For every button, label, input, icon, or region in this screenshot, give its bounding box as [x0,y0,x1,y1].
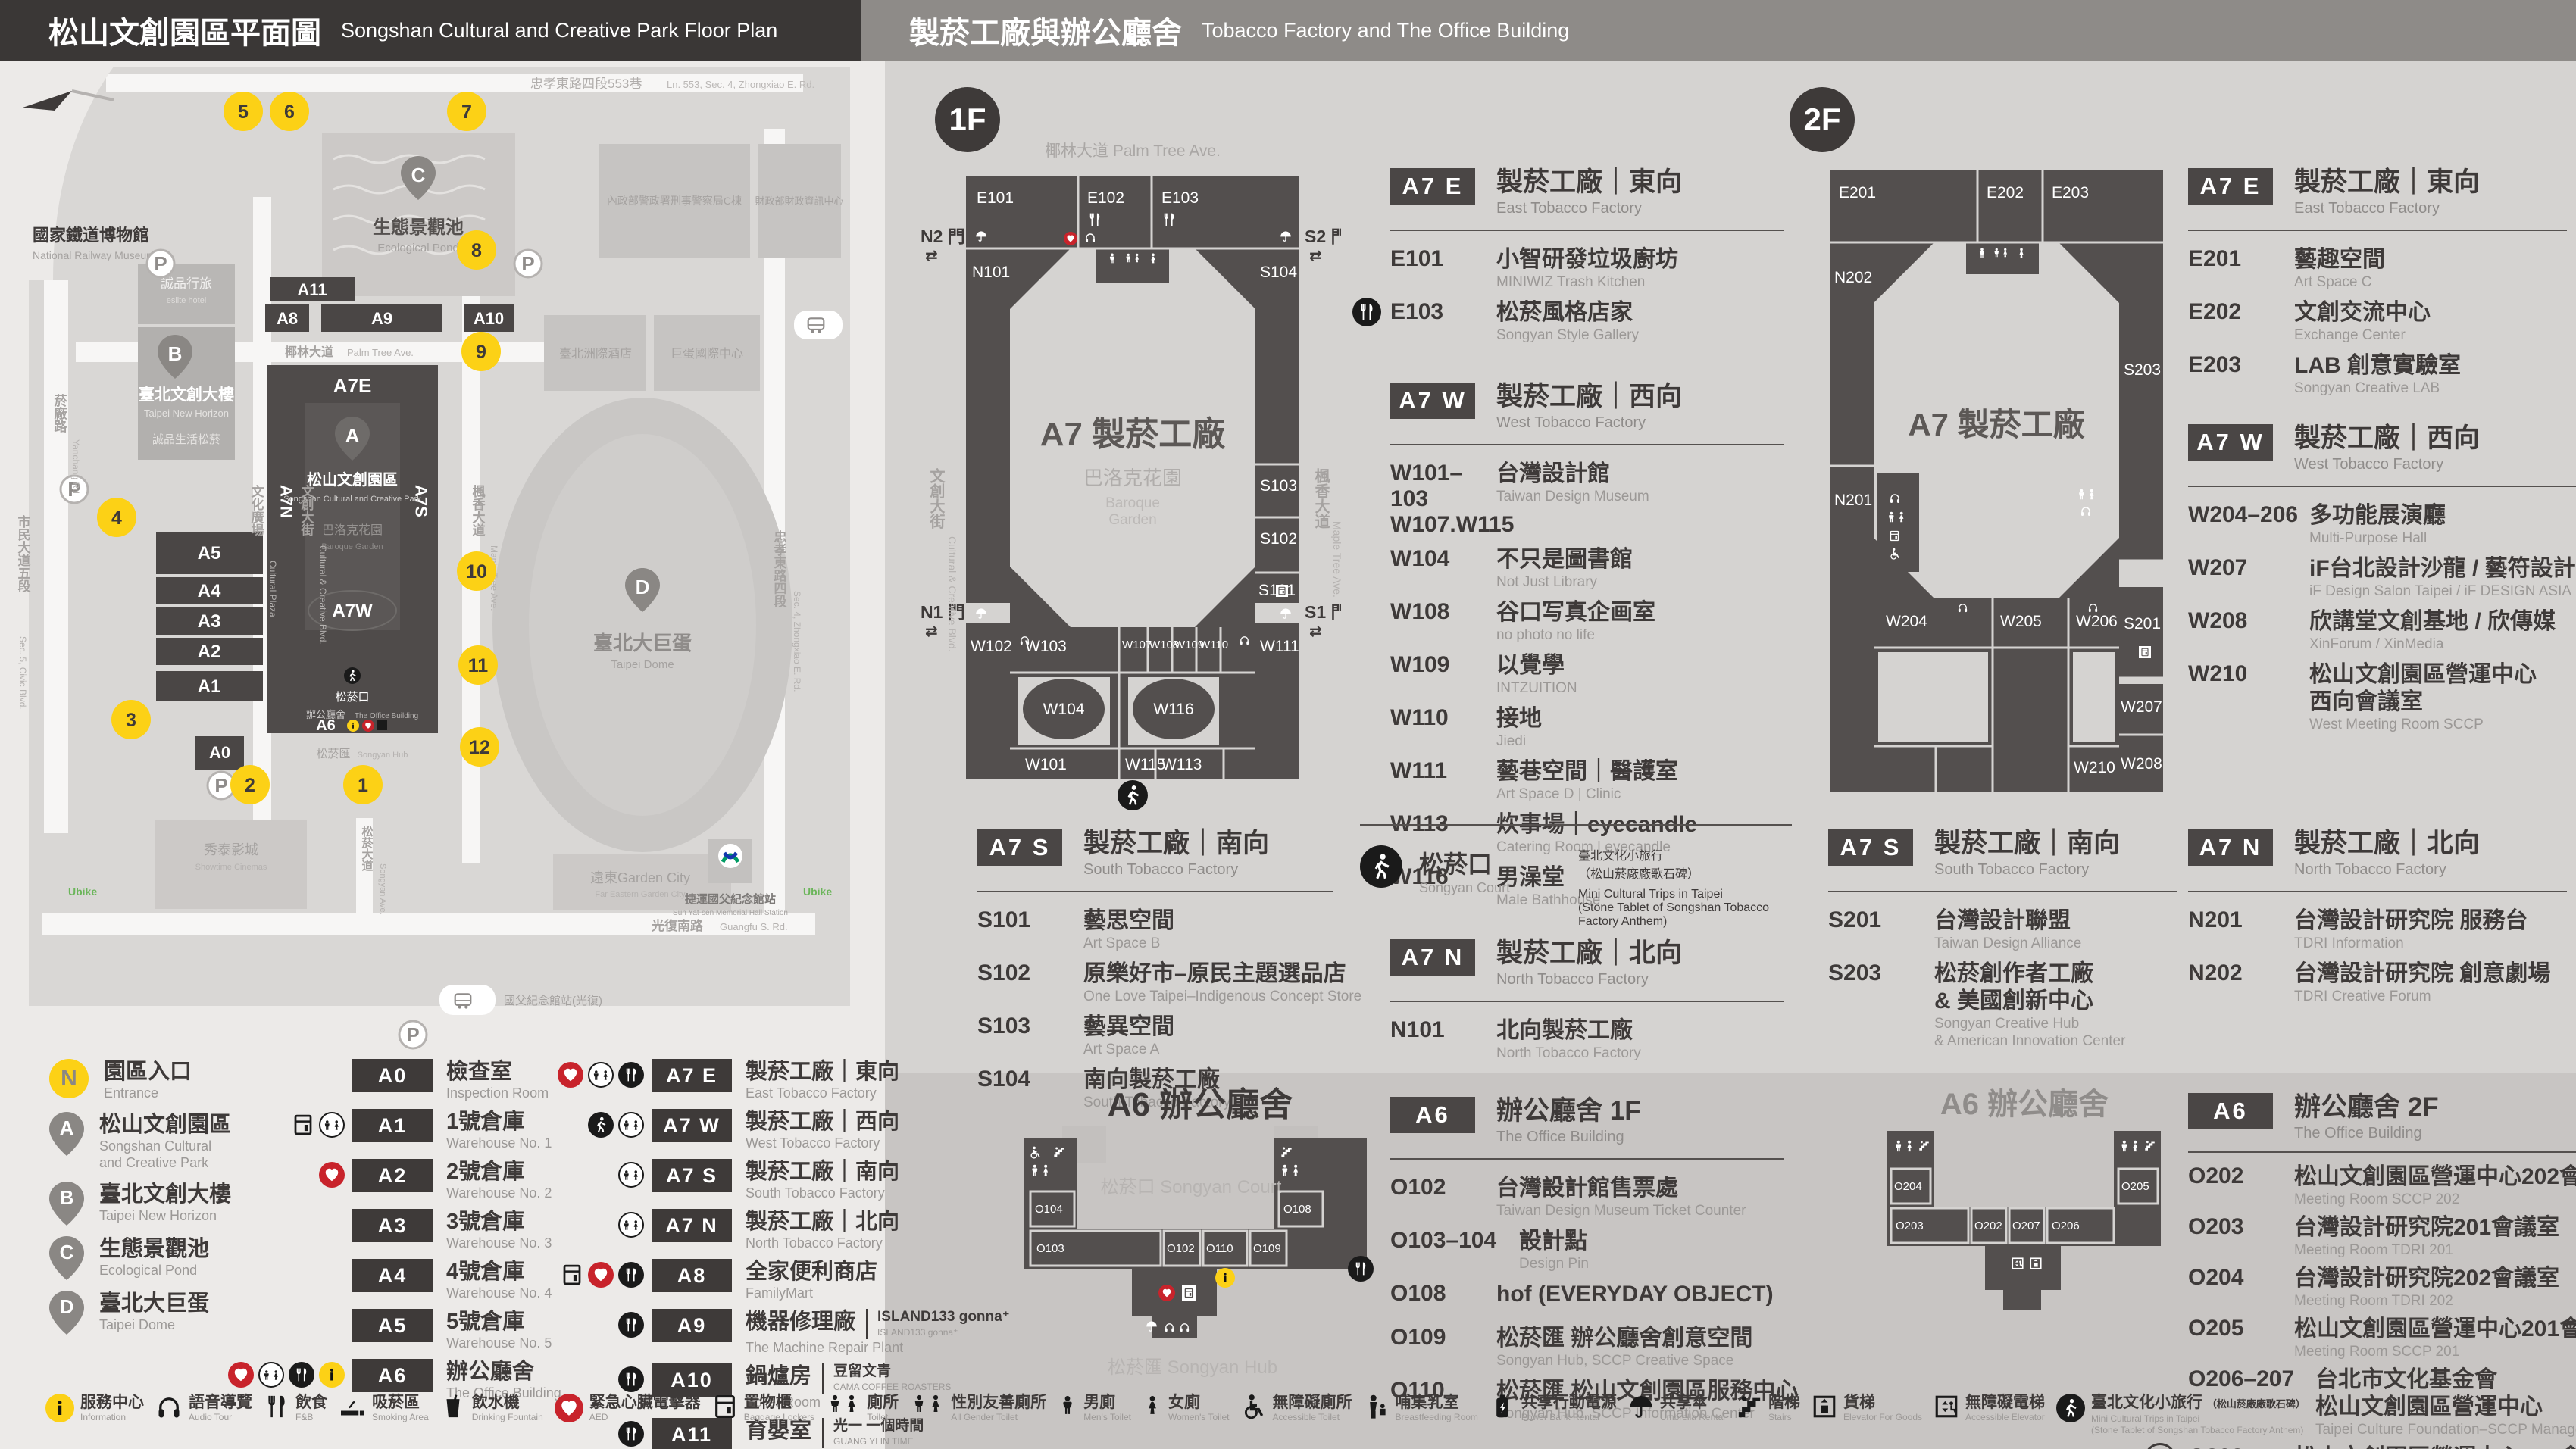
section-badge: A7 N [1390,939,1475,976]
section-name-en: East Tobacco Factory [1496,200,1682,217]
svg-text:3: 3 [126,710,136,731]
section-name-zh: 製菸工廠｜北向 [1496,939,1682,969]
room-entry: E103 松菸風格店家Songyan Style Gallery [1390,299,1784,344]
new-horizon-label-zh: 臺北文創大樓 [139,386,234,404]
section-badge: A7 W [2188,424,2273,461]
room-entry: S203 松菸創作者工廠 & 美國創新中心 Songyan Creative H… [1828,960,2177,1050]
legend-place-a: A 松山文創園區Songshan Cultural and Creative P… [49,1112,231,1171]
room-entry: W207 iF台北設計沙龍 / 藝符設計iF Design Salon Taip… [2188,555,2576,600]
svg-text:N202: N202 [1834,269,1872,286]
facility-stairs: 階梯Stairs [1737,1394,1800,1423]
section-badge: A6 [1390,1097,1475,1133]
room-entry: O203 台灣設計研究院201會議室Meeting Room TDRI 201 [2188,1214,2576,1259]
room-entry: W204–206 多功能展演廳Multi-Purpose Hall [2188,502,2576,547]
section-badge: A7 E [2188,168,2273,205]
svg-text:S203: S203 [2124,361,2161,379]
map-label-a0: A0 [209,743,230,762]
bus-stop-label: 國父紀念館站(光復) [504,994,602,1007]
svg-text:12: 12 [469,737,490,758]
svg-text:E201: E201 [1839,184,1876,201]
room-entry: E201 藝趣空間Art Space C [2188,246,2567,291]
locker-icon [712,1394,738,1419]
office1f-map: A6 辦公廳舍 松菸口 Songyan Court O104 O108 O103… [1018,1079,1374,1390]
svg-text:⇄: ⇄ [925,623,938,640]
bus-stop-east [794,311,843,339]
yanchang-label: 菸廠路 [52,394,67,433]
room-entry: O103–104 設計點Design Pin [1390,1228,1784,1273]
map-label-a1: A1 [198,676,221,697]
room-entry: S103 藝異空間Art Space A [977,1013,1333,1058]
civic-label-en: Sec. 5, Civic Blvd. [17,636,28,710]
stairs-icon [1737,1394,1762,1419]
section-a7n-1f: A7 N 製菸工廠｜北向 North Tobacco Factory N101 … [1390,939,1784,1070]
map-label-a2: A2 [198,642,221,662]
section-name-en: South Tobacco Factory [1083,861,1269,879]
map-label-a3: A3 [198,611,221,632]
yanchang-label-en: Yanchang Rd. [70,439,81,496]
palm-ave-label-en: Palm Tree Ave. [347,347,414,358]
legend-place-b: B 臺北文創大樓Taipei New Horizon [49,1182,231,1226]
room-entry: O102 台灣設計館售票處Taiwan Design Museum Ticket… [1390,1175,1784,1219]
svg-text:W206: W206 [2076,613,2118,630]
svg-text:O204: O204 [1894,1180,1922,1193]
ccblvd-label-en: Cultural & Creative Blvd. [317,545,328,645]
section-name-zh: 製菸工廠｜西向 [2294,424,2480,454]
lane553-label: 忠孝東路四段553巷 [530,77,642,91]
room-entry: O204 台灣設計研究院202會議室Meeting Room TDRI 202 [2188,1265,2576,1310]
svg-text:10: 10 [466,561,487,582]
locker-icon [561,1262,583,1288]
facility-dining: 飲食F&B [264,1394,327,1423]
eslite-life-label: 誠品生活松菸 [152,433,220,446]
section-name-en: West Tobacco Factory [2294,456,2480,473]
toilet-icon [618,1112,644,1138]
section-badge: A7 S [977,829,1062,866]
office2f-map-title: A6 辦公廳舍 [1940,1087,2109,1121]
toilet-icon [618,1162,644,1188]
neighbor-buildings-north: 內政部警政署刑事警察局C棟 財政部財政資訊中心 [599,144,844,258]
svg-text:E103: E103 [1161,189,1199,207]
page-title-zh: 松山文創園區平面圖 [48,8,321,52]
zhongxiao-label-en: Sec. 4, Zhongxiao E. Rd. [792,591,802,692]
park-map: 國家鐵道博物館 National Railway Museum 忠孝東路四段55… [0,61,861,1059]
legend-place-d: D 臺北大巨蛋Taipei Dome [49,1291,231,1335]
walking-tour-icon [588,1112,614,1138]
court-name-zh: 松菸口 [1419,845,1562,880]
svg-text:S103: S103 [1260,477,1297,495]
room-entry: N201 台灣設計研究院 服務台TDRI Information [2188,907,2567,952]
hub-label-en: Songyan Hub [358,751,408,760]
drinking-fountain-icon [440,1394,466,1419]
svg-text:O103: O103 [1036,1242,1064,1255]
railway-museum-label-en: National Railway Museum [33,249,155,261]
svg-text:⇄: ⇄ [1309,623,1322,640]
facility-accessible-toilet: 無障礙廁所Accessible Toilet [1241,1394,1352,1423]
svg-text:O102: O102 [1167,1242,1195,1255]
pin-b-icon: B [49,1182,84,1226]
svg-text:W102: W102 [971,638,1012,655]
gov1-label: 內政部警政署刑事警察局C棟 [607,195,742,207]
map-label-a9: A9 [371,309,392,328]
svg-text:E102: E102 [1087,189,1124,207]
legend-a2: A2 2號倉庫Warehouse No. 2 [352,1159,561,1201]
section-name-en: West Tobacco Factory [1496,414,1682,432]
hub-label: 松菸匯 [316,748,350,760]
facility-toilet: 廁所Toilet [826,1394,899,1423]
garden-city-label: 遠東Garden City [590,870,690,885]
civic-label: 市民大道五段 [16,514,31,593]
map-label-a7w: A7W [332,601,373,621]
facility-information: 服務中心Information [45,1394,144,1423]
zhongxiao-label: 忠孝東路四段 [772,529,787,608]
svg-text:W208: W208 [2121,755,2162,773]
legend-places: N 園區入口Entrance A 松山文創園區Songshan Cultural… [49,1059,231,1345]
legend-a3: A3 3號倉庫Warehouse No. 3 [352,1209,561,1251]
svg-text:B: B [168,342,183,365]
all-gender-toilet-icon [910,1394,945,1413]
svg-text:11: 11 [468,655,489,676]
svg-text:2: 2 [245,775,255,796]
svg-text:O104: O104 [1035,1203,1063,1216]
svg-text:W113: W113 [1161,756,1202,773]
legend-a5: A5 5號倉庫Warehouse No. 5 [352,1309,561,1351]
legend-sections: A7 E 製菸工廠｜東向East Tobacco Factory A7 W 製菸… [652,1059,1015,1449]
svg-text:W107: W107 [1122,639,1152,651]
locker-icon [292,1112,314,1138]
gov2-label: 財政部財政資訊中心 [755,195,843,207]
legend-a4: A4 4號倉庫Warehouse No. 4 [352,1259,561,1301]
room-entry: E101 小智研發垃圾廚坊MINIWIZ Trash Kitchen [1390,246,1784,291]
svg-text:N201: N201 [1834,492,1872,509]
taipei-new-horizon: 誠品行旅 eslite hotel B 臺北文創大樓 Taipei New Ho… [138,264,235,460]
floor1-right-road: 楓香大道 [1312,467,1330,529]
section-a7n-2f: A7 N 製菸工廠｜北向 North Tobacco Factory N201 … [2188,829,2567,1013]
svg-text:W103: W103 [1025,638,1067,655]
eslite-hotel-label: 誠品行旅 [161,276,212,291]
info-icon [45,1394,74,1422]
legend-a7w: A7 W 製菸工廠｜西向West Tobacco Factory [652,1109,1015,1151]
new-horizon-label-en: Taipei New Horizon [144,408,229,419]
svg-text:⇄: ⇄ [925,248,938,264]
section-badge: A7 N [2188,829,2273,866]
svg-text:9: 9 [476,342,486,363]
entrance-symbol: N [49,1059,89,1098]
dome-center-label: 巨蛋國際中心 [671,347,743,361]
map-label-a5: A5 [198,543,221,564]
svg-text:P: P [154,252,167,275]
walking-tour-icon [2056,1394,2085,1422]
facility-cultural-trip: 臺北文化小旅行 （松山菸廠廠歌石碑） Mini Cultural Trips i… [2056,1394,2306,1436]
aed-icon [319,1162,345,1188]
map-label-a11: A11 [297,280,327,299]
room-entry: E202 文創交流中心Exchange Center [2188,299,2567,344]
section-badge: A7 W [1390,383,1475,419]
room-entry: W110 接地Jiedi [1390,705,1784,750]
park-name-label: 松山文創園區 [307,470,398,489]
svg-text:W205: W205 [2000,613,2042,630]
room-entry: O109 松菸匯 辦公廳舍創意空間Songyan Hub, SCCP Creat… [1390,1325,1784,1369]
railway-museum-label: 國家鐵道博物館 [33,226,149,245]
aed-icon [588,1262,614,1288]
room-entry: W104 不只是圖書館Not Just Library [1390,546,1784,591]
lane553-label-en: Ln. 553, Sec. 4, Zhongxiao E. Rd. [667,79,814,90]
ubike-label-1: Ubike [68,885,97,898]
map-label-a6: A6 [316,717,336,734]
svg-text:N2 門: N2 門 [921,226,965,246]
legend-a7n: A7 N 製菸工廠｜北向North Tobacco Factory [652,1209,1015,1251]
svg-text:O205: O205 [2121,1180,2149,1193]
toilet-icon [588,1062,614,1088]
room-entry: O108 hof (EVERYDAY OBJECT) [1390,1281,1784,1308]
guangfu-label: 光復南路 [651,918,704,933]
svg-text:5: 5 [238,101,249,123]
svg-text:S104: S104 [1260,264,1297,281]
facility-accessible-elevator: 無障礙電梯Accessible Elevator [1934,1394,2045,1423]
svg-text:A: A [345,424,360,447]
aed-icon [228,1362,254,1388]
section-a7e-2f: A7 E 製菸工廠｜東向 East Tobacco Factory E201 藝… [2188,168,2567,405]
facility-fountain: 飲水機Drinking Fountain [440,1394,543,1423]
svg-text:W110: W110 [1199,639,1228,651]
facility-lockers: 置物櫃Baggage Lockers [712,1394,814,1423]
legend-a9: A9 機器修理廠 ISLAND133 gonna⁺ISLAND133 gonna… [652,1309,1015,1356]
svg-text:O202: O202 [1974,1219,2002,1232]
svg-text:O203: O203 [1896,1219,1924,1232]
toilet-icon [618,1212,644,1238]
map-label-a8: A8 [277,309,298,328]
room-entry: E203 LAB 創意實驗室Songyan Creative LAB [2188,352,2567,397]
songyanave-label: 松菸大道 [361,825,374,871]
header-right: 製菸工廠與辦公廳舍 Tobacco Factory and The Office… [861,0,2576,61]
legend-place-c: C 生態景觀池Ecological Pond [49,1236,231,1280]
facility-aed: 緊急心臟電擊器AED [555,1394,701,1423]
toilet-icon [826,1394,861,1413]
svg-text:W104: W104 [1043,701,1085,718]
room-entry: 3F O302 松山文創園區營運中心301會議室Meeting Room SCC… [2188,1444,2576,1449]
ecological-pond: C 生態景觀池 Ecological Pond [322,133,515,296]
section-name-en: North Tobacco Factory [2294,861,2480,879]
room-entry: W108 谷口写真企画室no photo no life [1390,599,1784,644]
cinema-label: 秀泰影城 [204,842,258,857]
mrt-label-en: Sun Yat-sen Memorial Hall Station [673,909,788,917]
dining-icon [618,1262,644,1288]
section-name-en: North Tobacco Factory [1496,971,1682,988]
floor1-map: 椰林大道 Palm Tree Ave. E10 [905,142,1341,828]
section-title-zh: 製菸工廠與辦公廳舍 [909,8,1182,52]
room-entry: W208 欣講堂文創基地 / 欣傳媒XinForum / XinMedia [2188,608,2576,653]
dining-icon [618,1366,644,1392]
section-a7e-1f: A7 E 製菸工廠｜東向 East Tobacco Factory E101 小… [1390,168,1784,352]
office1f-map-title: A6 辦公廳舍 [1108,1086,1293,1123]
floor1-garden-label: 巴洛克花園 [1083,467,1182,489]
baroque-label: 巴洛克花園 [322,523,383,537]
svg-text:W207: W207 [2121,698,2162,716]
floor1-garden-en2: Garden [1108,512,1156,528]
plaza-label-en: Cultural Plaza [267,561,278,617]
facility-smoking: 吸菸區Smoking Area [339,1394,429,1423]
room-entry: O205 松山文創園區營運中心201會議室Meeting Room SCCP 2… [2188,1316,2576,1360]
svg-text:O109: O109 [1253,1242,1281,1255]
floor-plan-poster: 松山文創園區平面圖 Songshan Cultural and Creative… [0,0,2576,1449]
plaza-label: 文化廣場 [249,484,264,537]
ccblvd-label: 文創大街 [299,484,315,537]
room-entry: S201 台灣設計聯盟Taiwan Design Alliance [1828,907,2177,952]
office2f-map: A6 辦公廳舍 O204 O205 O203 O202 O207 O206 [1865,1079,2184,1337]
map-label-a4: A4 [198,581,221,601]
svg-text:S2 門: S2 門 [1305,226,1341,246]
svg-text:7: 7 [461,101,472,123]
svg-text:P: P [521,252,534,275]
svg-text:P: P [406,1023,419,1046]
baroque-label-en: Baroque Garden [321,542,383,551]
room-entry: W101–103W107.W115 台灣設計館Taiwan Design Mus… [1390,461,1784,538]
power-bank-icon [1490,1394,1515,1419]
section-badge: A7 S [1828,829,1913,866]
wheelchair-icon [1241,1394,1267,1419]
dining-icon [264,1394,289,1419]
section-badge: A7 E [1390,168,1475,205]
page-title-en: Songshan Cultural and Creative Park Floo… [341,19,777,42]
office1f-hub-label: 松菸匯 Songyan Hub [1108,1357,1277,1378]
svg-text:S1 門: S1 門 [1305,602,1341,622]
toilet-icon [319,1112,345,1138]
pin-a-icon: A [49,1112,84,1156]
svg-text:6: 6 [284,101,295,123]
room-entry: S102 原樂好市–原民主題選品店One Love Taipei–Indigen… [977,960,1333,1005]
walking-tour-icon [1360,845,1402,888]
womens-toilet-icon [1143,1394,1162,1416]
svg-text:E203: E203 [2052,184,2089,201]
court-name-en: Songyan Court [1419,880,1562,896]
section-songyan-court: 松菸口 Songyan Court 臺北文化小旅行 （松山菸廠廠歌石碑） Min… [1360,812,1792,929]
mens-toilet-icon [1058,1394,1077,1416]
headset-icon [155,1394,183,1421]
cargo-elevator-icon [1812,1394,1837,1419]
floor1-garden-en1: Baroque [1105,495,1160,511]
svg-text:⇄: ⇄ [1309,248,1322,264]
room-entry: N101 北向製菸工廠North Tobacco Factory [1390,1017,1784,1062]
facility-umbrella: 共享傘Umbrella Rental [1628,1394,1725,1423]
map-label-a10: A10 [474,309,504,328]
taipei-dome: D 臺北大巨蛋 Taipei Dome [492,398,792,852]
floor2-map: E201 E202 E203 N202 N201 S203 S201 W207 … [1815,148,2178,814]
pond-label-en: Ecological Pond [377,242,459,255]
room-entry: O202 松山文創園區營運中心202會議室Meeting Room SCCP 2… [2188,1163,2576,1208]
section-a6-1f: A6 辦公廳舍 1F The Office Building O102 台灣設計… [1390,1097,1784,1431]
map-label-a7e: A7E [333,374,372,397]
svg-text:8: 8 [471,240,482,261]
legend-buildings: A0 檢查室Inspection Room A1 1號倉庫Warehouse N… [352,1059,561,1409]
svg-text:W204: W204 [1886,613,1927,630]
section-name-en: The Office Building [2294,1125,2439,1142]
office1f-building [1024,1138,1367,1338]
section-name-zh: 辦公廳舍 2F [2294,1093,2439,1123]
section-title-en: Tobacco Factory and The Office Building [1202,19,1569,42]
section-name-zh: 辦公廳舍 1F [1496,1097,1641,1126]
aed-icon [555,1394,583,1422]
ubike-label-2: Ubike [803,885,832,898]
header-left: 松山文創園區平面圖 Songshan Cultural and Creative… [0,0,861,61]
dining-icon [618,1062,644,1088]
dining-icon [1352,298,1381,326]
office-label-en: The Office Building [355,712,418,720]
svg-text:W101: W101 [1025,756,1067,773]
floor1-left-road: 文創大街 [927,467,946,529]
a7-building: A7E A7N A7S A 松山文創園區 Songshan Cultural a… [267,365,438,760]
svg-text:P: P [214,774,227,797]
floor1-top-road: 椰林大道 Palm Tree Ave. [1045,142,1221,160]
facility-mens: 男廁Men's Toilet [1058,1394,1131,1423]
facility-all-gender: 性別友善廁所All Gender Toilet [910,1394,1046,1423]
svg-text:C: C [411,164,426,186]
legend-entrance: N 園區入口Entrance [49,1059,231,1101]
pin-c-icon: C [49,1236,84,1280]
section-name-zh: 製菸工廠｜南向 [1083,829,1269,859]
songyanave-label-en: Songyan Ave. [378,863,387,915]
dining-icon [289,1362,314,1388]
floor-2f-badge: 2F [1790,87,1855,152]
section-name-en: South Tobacco Factory [1934,861,2120,879]
pond-label-zh: 生態景觀池 [373,217,464,238]
svg-text:N101: N101 [972,264,1010,281]
svg-text:E101: E101 [977,189,1014,207]
svg-text:W210: W210 [2074,759,2115,776]
dome-label-zh: 臺北大巨蛋 [593,632,692,654]
room-entry: S101 藝思空間Art Space B [977,907,1333,952]
svg-text:W116: W116 [1153,701,1193,718]
svg-text:W111: W111 [1260,638,1299,655]
umbrella-icon [1628,1394,1654,1419]
svg-text:O110: O110 [1206,1242,1233,1255]
legend-a8: A8 全家便利商店FamilyMart [652,1259,1015,1301]
room-entry: W210 松山文創園區營運中心 西向會議室 West Meeting Room … [2188,661,2576,733]
section-name-zh: 製菸工廠｜西向 [1496,383,1682,412]
section-name-en: The Office Building [1496,1129,1641,1146]
section-name-zh: 製菸工廠｜北向 [2294,829,2480,859]
garden-city-label-en: Far Eastern Garden City [595,890,686,899]
aed-icon [558,1062,583,1088]
floor1-center-label: A7 製菸工廠 [1040,415,1225,453]
svg-text:1: 1 [358,775,368,796]
palm-ave-label: 椰林大道 [285,345,333,359]
floor1-left-road-en: Cultural & Creative Blvd. [946,536,958,652]
section-name-zh: 製菸工廠｜東向 [1496,168,1682,198]
cinema-label-en: Showtime Cinemas [195,863,267,872]
toilet-icon [258,1362,284,1388]
room-entry: W111 藝巷空間｜醫護室Art Space D | Clinic [1390,758,1784,803]
hotel-label: 臺北洲際酒店 [559,347,632,361]
dome-label-en: Taipei Dome [611,658,674,671]
info-icon [319,1362,345,1388]
svg-text:S102: S102 [1260,530,1297,548]
floor1-right-road-en: Maple Tree Ave. [1331,521,1341,598]
court-label: 松菸口 [335,691,369,704]
floor2-center-label: A7 製菸工廠 [1908,407,2084,442]
svg-text:4: 4 [111,507,122,529]
section-name-en: East Tobacco Factory [2294,200,2480,217]
legend-a7e: A7 E 製菸工廠｜東向East Tobacco Factory [652,1059,1015,1101]
svg-text:O206: O206 [2052,1219,2080,1232]
room-entry: N202 台灣設計研究院 創意劇場TDRI Creative Forum [2188,960,2567,1005]
dining-icon [1348,1256,1374,1282]
svg-text:D: D [636,576,650,598]
dining-icon [618,1312,644,1338]
facility-cargo-elevator: 貨梯Elevator For Goods [1812,1394,1922,1423]
legend-a7s: A7 S 製菸工廠｜南向South Tobacco Factory [652,1159,1015,1201]
eslite-hotel-label-en: eslite hotel [167,296,207,305]
office1f-court-label: 松菸口 Songyan Court [1101,1177,1282,1198]
section-badge: A6 [2188,1093,2273,1129]
